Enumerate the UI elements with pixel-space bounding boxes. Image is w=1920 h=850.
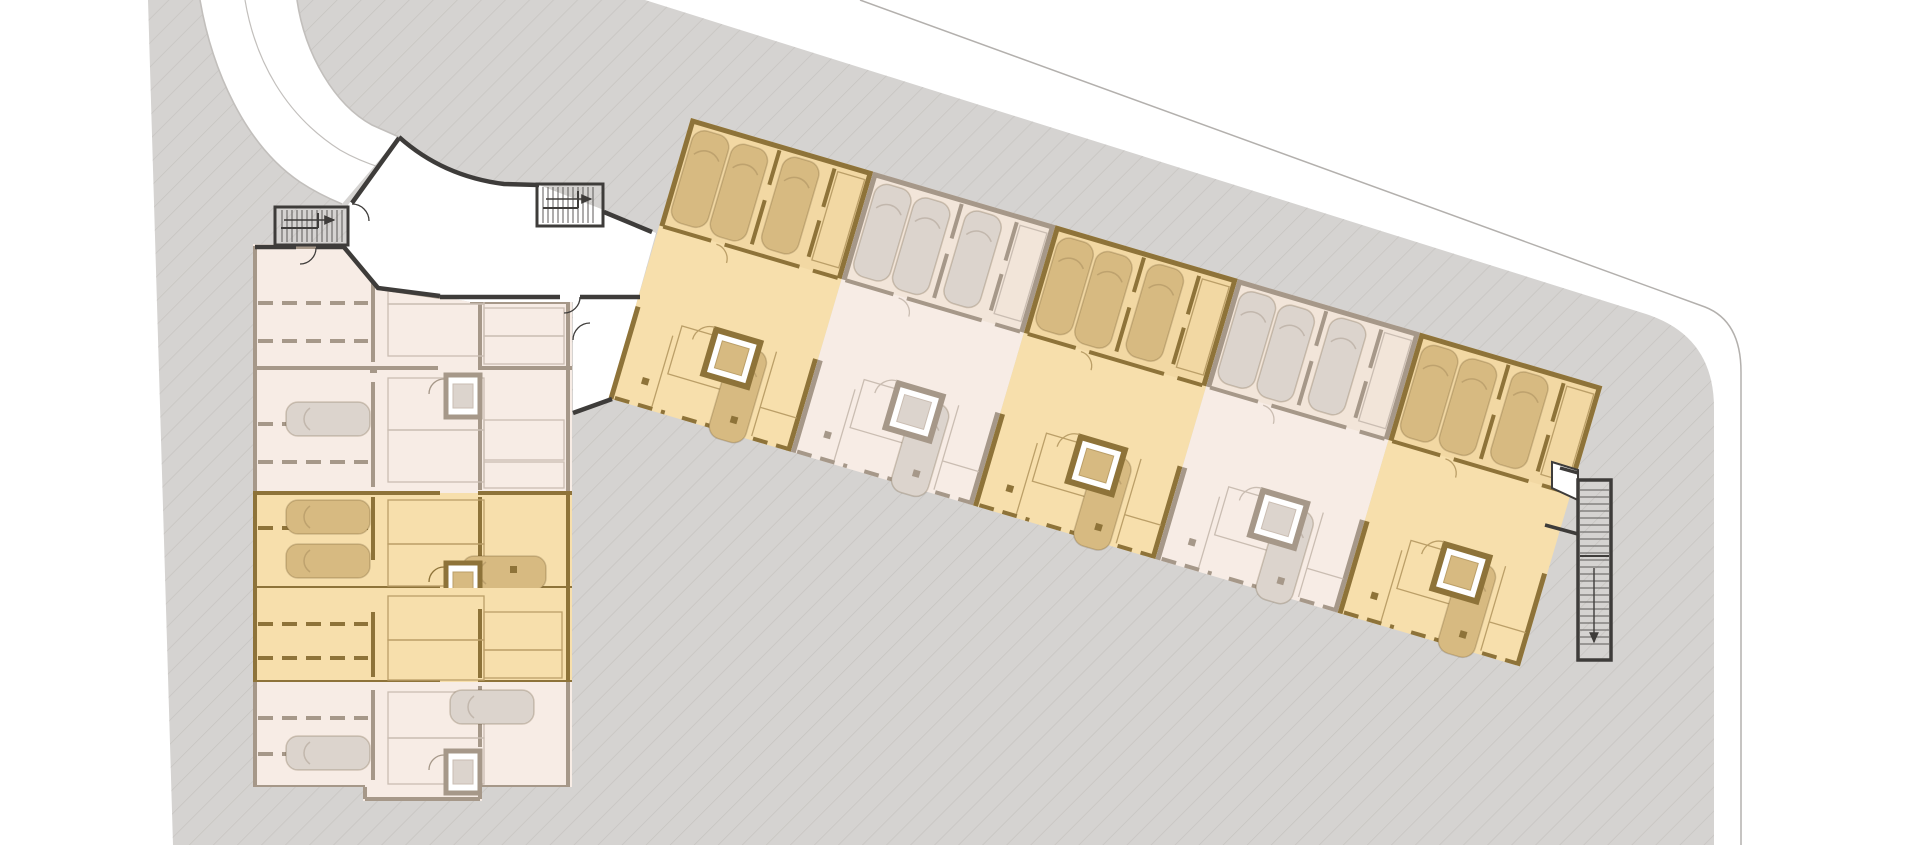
page-margin xyxy=(0,845,1920,850)
unit-row-A5[interactable] xyxy=(253,682,573,802)
floor-plan-canvas xyxy=(0,0,1920,850)
unit-row-A2[interactable] xyxy=(253,366,573,493)
floor-plan-viewer xyxy=(0,0,1920,850)
building-left-wing xyxy=(253,242,573,802)
unit-row-A4[interactable] xyxy=(253,588,573,682)
